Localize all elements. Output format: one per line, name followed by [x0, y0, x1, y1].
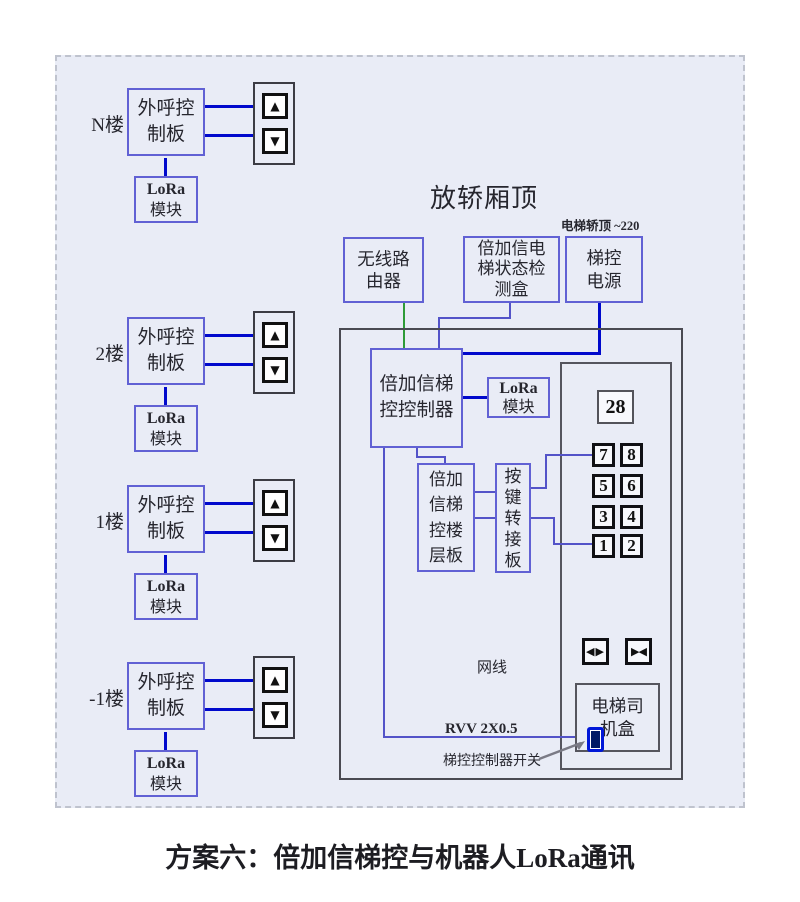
door-close-icon: ▶◀ [625, 638, 652, 665]
up-arrow-icon: ▲ [262, 322, 288, 348]
hall-button-panel: ▲ ▼ [253, 656, 295, 739]
car-button-3: 3 [592, 505, 615, 529]
wire-board-lora [164, 158, 167, 177]
controller-lora-module-box: LoRa 模块 [487, 377, 550, 418]
hall-button-panel: ▲ ▼ [253, 82, 295, 165]
up-arrow-icon: ▲ [262, 667, 288, 693]
floor-unit-minus1: -1楼 外呼控 制板 ▲ ▼ LoRa 模块 [62, 656, 307, 806]
call-control-board: 外呼控 制板 [127, 485, 205, 553]
floor-unit-n: N楼 外呼控 制板 ▲ ▼ LoRa 模块 [62, 82, 307, 232]
down-arrow-icon: ▼ [262, 702, 288, 728]
wire-board-downbtn [203, 134, 255, 137]
floor-label: 2楼 [62, 342, 124, 368]
up-arrow-icon: ▲ [262, 93, 288, 119]
wire-board-upbtn [203, 679, 255, 682]
switch-pointer-arrow [535, 735, 590, 763]
elevator-control-power-box: 梯控 电源 [565, 236, 643, 303]
floor-unit-1: 1楼 外呼控 制板 ▲ ▼ LoRa 模块 [62, 479, 307, 629]
lora-module-box: LoRa 模块 [134, 573, 198, 620]
wire-keyadapter-btn1-c [553, 543, 593, 545]
wire-keyadapter-btn1-a [530, 517, 555, 519]
floor-unit-2: 2楼 外呼控 制板 ▲ ▼ LoRa 模块 [62, 311, 307, 461]
car-button-4: 4 [620, 505, 643, 529]
floor-display: 28 [597, 390, 634, 424]
wire-keyadapter-btn7-c [545, 454, 593, 456]
wire-detector-across [438, 317, 511, 319]
hall-button-panel: ▲ ▼ [253, 311, 295, 394]
key-adapter-board-box: 按 键 转 接 板 [495, 463, 531, 573]
call-control-board: 外呼控 制板 [127, 662, 205, 730]
wire-keyadapter-btn1-b [553, 517, 555, 545]
down-arrow-icon: ▼ [262, 525, 288, 551]
elevator-status-detector-box: 倍加信电 梯状态检 测盒 [463, 236, 560, 303]
wire-controller-lora [462, 396, 487, 399]
call-control-board: 外呼控 制板 [127, 88, 205, 156]
floor-board-box: 倍加 信梯 控楼 层板 [417, 463, 475, 572]
door-open-icon: ◀▶ [582, 638, 609, 665]
car-button-8: 8 [620, 443, 643, 467]
wire-board-upbtn [203, 105, 255, 108]
wire-board-downbtn [203, 531, 255, 534]
lora-module-box: LoRa 模块 [134, 405, 198, 452]
lora-module-box: LoRa 模块 [134, 176, 198, 223]
wire-board-downbtn [203, 363, 255, 366]
network-cable-label: 网线 [477, 656, 507, 677]
power-note: 电梯轿顶 ~220 [561, 215, 639, 234]
down-arrow-icon: ▼ [262, 128, 288, 154]
floor-label: -1楼 [62, 687, 124, 713]
car-button-5: 5 [592, 474, 615, 498]
wire-board-downbtn [203, 708, 255, 711]
diagram-caption: 方案六：倍加信梯控与机器人LoRa通讯 [0, 836, 800, 875]
car-button-2: 2 [620, 534, 643, 558]
lora-module-box: LoRa 模块 [134, 750, 198, 797]
down-arrow-icon: ▼ [262, 357, 288, 383]
wire-floorboard-keyadapter-2 [475, 517, 495, 519]
car-button-1: 1 [592, 534, 615, 558]
wire-keyadapter-btn7-b [545, 454, 547, 489]
wire-board-upbtn [203, 334, 255, 337]
rvv-cable-label: RVV 2X0.5 [445, 721, 518, 738]
call-control-board: 外呼控 制板 [127, 317, 205, 385]
switch-label: 梯控控制器开关 [443, 750, 541, 770]
cartop-title: 放轿厢顶 [430, 178, 538, 215]
wire-floorboard-keyadapter-1 [475, 491, 495, 493]
controller-switch-toggle [591, 731, 600, 748]
wire-board-lora [164, 555, 167, 574]
wire-board-upbtn [203, 502, 255, 505]
up-arrow-icon: ▲ [262, 490, 288, 516]
car-button-7: 7 [592, 443, 615, 467]
car-button-6: 6 [620, 474, 643, 498]
wire-board-lora [164, 732, 167, 751]
floor-label: 1楼 [62, 510, 124, 536]
wireless-router-box: 无线路 由器 [343, 237, 424, 303]
hall-button-panel: ▲ ▼ [253, 479, 295, 562]
elevator-controller-box: 倍加信梯 控控制器 [370, 348, 463, 448]
wire-rvv-vertical [383, 448, 385, 738]
diagram-canvas: N楼 外呼控 制板 ▲ ▼ LoRa 模块 2楼 外呼控 制板 ▲ ▼ [0, 0, 800, 902]
floor-label: N楼 [62, 113, 124, 139]
wire-controller-floorboard-2 [416, 456, 446, 458]
wire-board-lora [164, 387, 167, 406]
